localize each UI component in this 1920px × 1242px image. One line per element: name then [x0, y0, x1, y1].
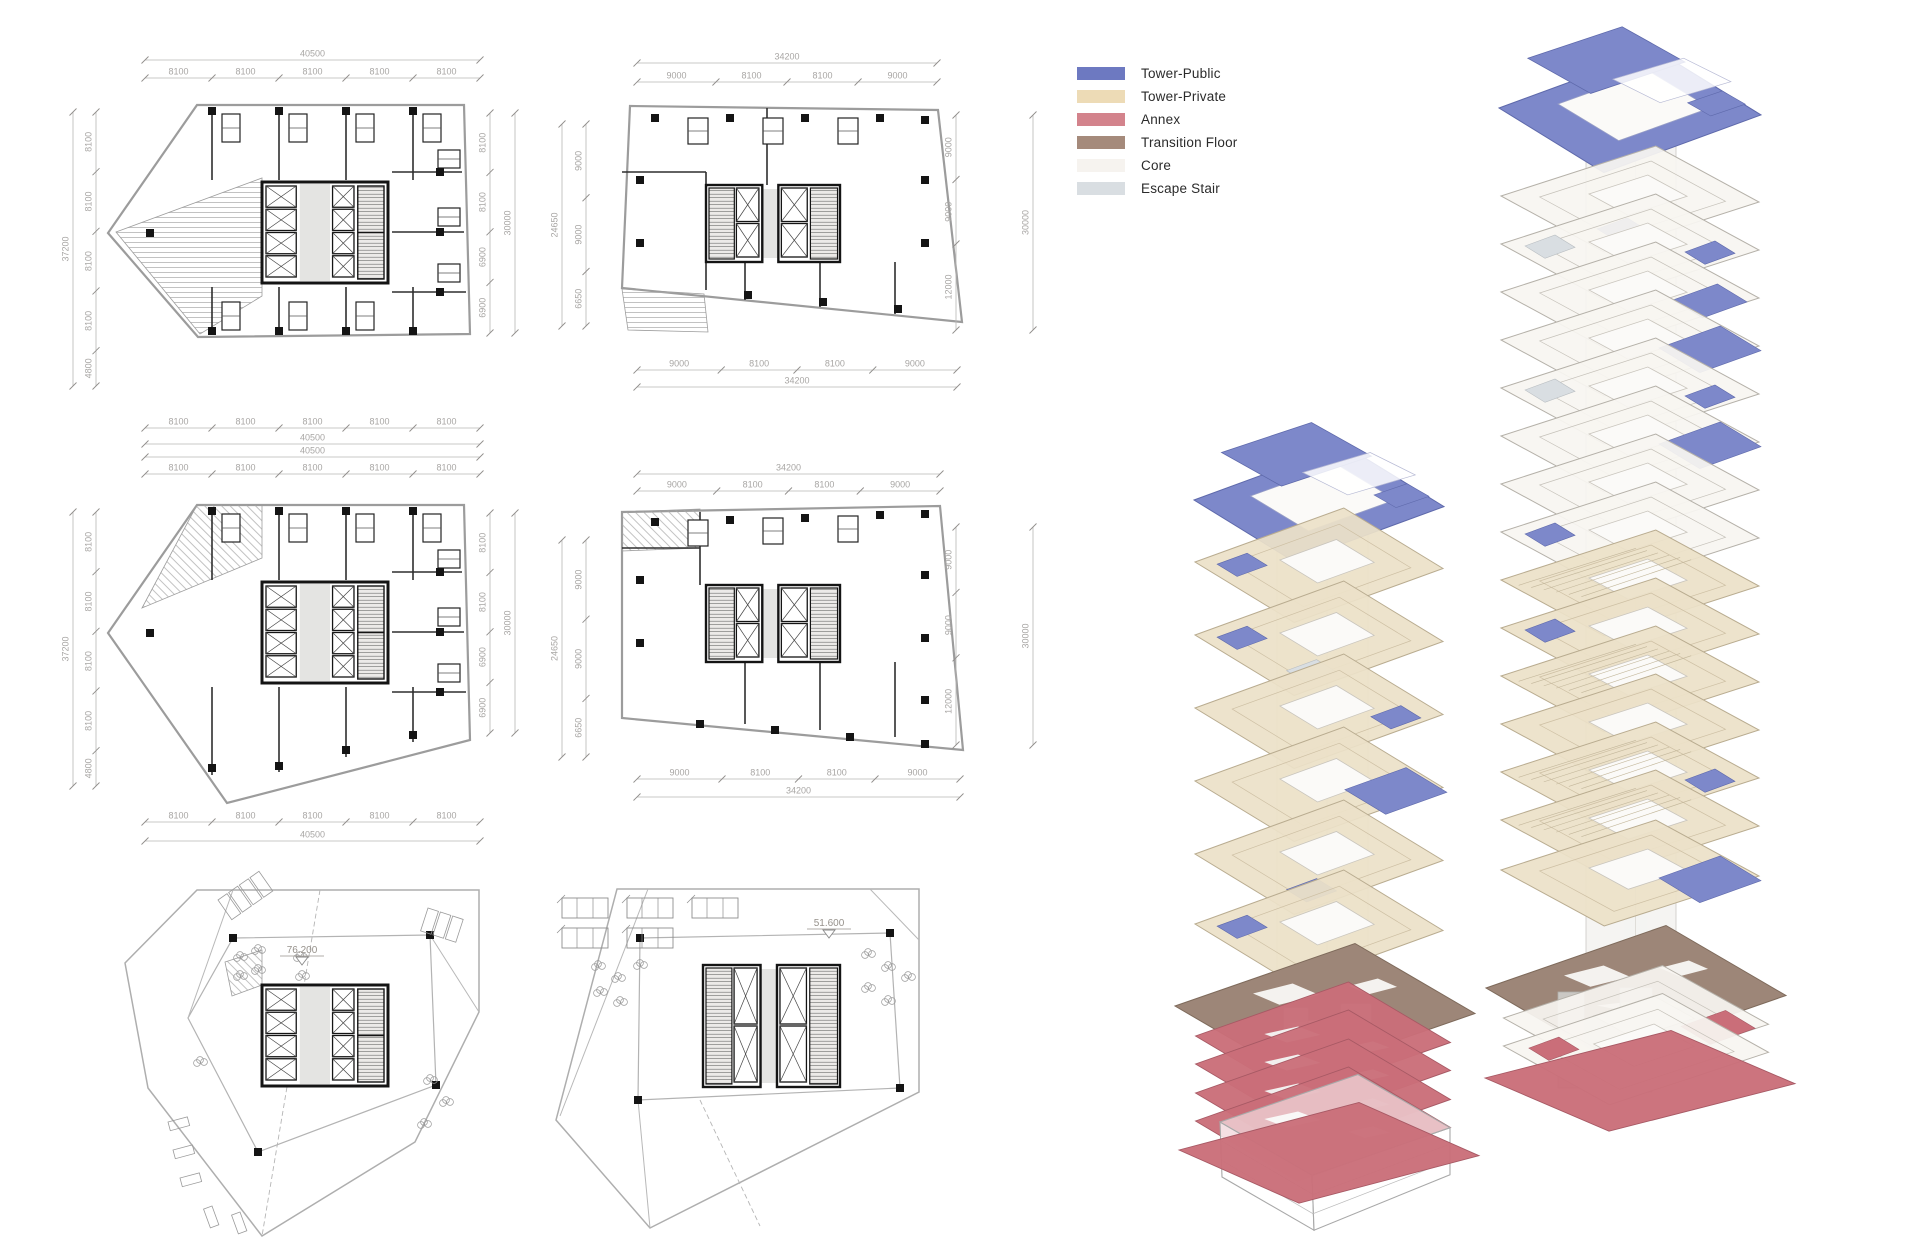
- dimension-text: 9000: [574, 151, 584, 171]
- dimension-text: 51.600: [814, 918, 845, 929]
- dimension-text: 12000: [944, 689, 954, 714]
- structural-column: [229, 934, 237, 942]
- dimension-text: 8100: [302, 463, 322, 473]
- dimension-text: 8100: [436, 67, 456, 77]
- structural-column: [208, 107, 216, 115]
- structural-column: [636, 176, 644, 184]
- structural-column: [651, 114, 659, 122]
- structural-column: [886, 929, 894, 937]
- escape-stair-hatch: [622, 289, 708, 332]
- structural-column: [846, 733, 854, 741]
- structural-column: [436, 568, 444, 576]
- dimension-text: 40500: [300, 49, 325, 59]
- dimension-text: 8100: [84, 311, 94, 331]
- structural-column: [275, 327, 283, 335]
- structural-column: [342, 327, 350, 335]
- tree-symbol: [447, 1099, 454, 1106]
- dimension-text: 9000: [905, 359, 925, 369]
- legend-item-annex: Annex: [1077, 108, 1357, 131]
- dimension-text: 8100: [369, 463, 389, 473]
- dimension-text: 9000: [944, 550, 954, 570]
- legend-label-annex: Annex: [1141, 112, 1180, 127]
- structural-column: [801, 514, 809, 522]
- dimension-text: 8100: [827, 768, 847, 778]
- dimension-text: 9000: [574, 570, 584, 590]
- dimension-text: 8100: [478, 133, 488, 153]
- structural-column: [651, 518, 659, 526]
- car-symbol: [173, 1145, 195, 1159]
- structural-column: [636, 639, 644, 647]
- structural-column: [896, 1084, 904, 1092]
- tree-symbol: [425, 1121, 432, 1128]
- dimension-text: 6900: [478, 298, 488, 318]
- dimension-text: 4800: [84, 358, 94, 378]
- legend-label-core: Core: [1141, 158, 1171, 173]
- dimension-text: 34200: [776, 463, 801, 473]
- plan-tower1-ground-site: 76.200: [125, 871, 479, 1236]
- dimension-text: 4800: [84, 758, 94, 778]
- structural-column: [726, 114, 734, 122]
- structural-column: [636, 576, 644, 584]
- structural-column: [409, 327, 417, 335]
- dimension-text: 8100: [84, 651, 94, 671]
- structural-column: [342, 746, 350, 754]
- legend-item-escape-stair: Escape Stair: [1077, 177, 1357, 200]
- legend-item-core: Core: [1077, 154, 1357, 177]
- structural-column: [208, 327, 216, 335]
- dimension-text: 8100: [168, 811, 188, 821]
- core-plan: [706, 585, 840, 662]
- dimension-text: 6650: [574, 289, 584, 309]
- structural-column: [436, 228, 444, 236]
- dimension-text: 8100: [478, 192, 488, 212]
- dimension-text: 8100: [813, 71, 833, 81]
- structural-column: [342, 107, 350, 115]
- plan-tower2-ground-site: 51.600: [556, 889, 919, 1228]
- dimension-text: 30000: [1021, 623, 1031, 648]
- structural-column: [771, 726, 779, 734]
- dimension-text: 37200: [61, 236, 71, 261]
- dimension-text: 9000: [944, 202, 954, 222]
- structural-column: [819, 298, 827, 306]
- structural-column: [409, 507, 417, 515]
- structural-column: [436, 168, 444, 176]
- core-plan: [262, 182, 388, 283]
- dimension-text: 8100: [235, 463, 255, 473]
- dimension-text: 24650: [550, 636, 560, 661]
- dimension-text: 8100: [825, 359, 845, 369]
- dimension-text: 9000: [907, 768, 927, 778]
- dimension-text: 8100: [168, 463, 188, 473]
- dimension-text: 40500: [300, 446, 325, 456]
- dimension-text: 9000: [888, 71, 908, 81]
- structural-column: [436, 288, 444, 296]
- dimension-text: 24650: [550, 212, 560, 237]
- dimension-text: 8100: [235, 67, 255, 77]
- structural-column: [208, 764, 216, 772]
- legend-swatch-core: [1077, 159, 1125, 172]
- structural-column: [921, 696, 929, 704]
- car-symbol: [204, 1206, 219, 1228]
- structural-column: [275, 762, 283, 770]
- dimension-text: 8100: [814, 480, 834, 490]
- legend-label-transition-floor: Transition Floor: [1141, 135, 1237, 150]
- structural-column: [921, 510, 929, 518]
- dimension-text: 6900: [478, 247, 488, 267]
- legend-item-transition-floor: Transition Floor: [1077, 131, 1357, 154]
- dimension-text: 9000: [944, 615, 954, 635]
- dimension-text: 8100: [235, 811, 255, 821]
- car-symbol: [180, 1173, 202, 1187]
- legend-swatch-tower-private: [1077, 90, 1125, 103]
- dimension-text: 34200: [774, 52, 799, 62]
- dimension-text: 9000: [890, 480, 910, 490]
- dimension-text: 37200: [61, 636, 71, 661]
- dimension-text: 8100: [436, 811, 456, 821]
- dimension-text: 6650: [574, 718, 584, 738]
- structural-column: [876, 511, 884, 519]
- legend-swatch-transition-floor: [1077, 136, 1125, 149]
- structural-column: [275, 107, 283, 115]
- structural-column: [254, 1148, 262, 1156]
- structural-column: [146, 629, 154, 637]
- dimension-text: 8100: [436, 463, 456, 473]
- structural-column: [342, 507, 350, 515]
- legend-swatch-escape-stair: [1077, 182, 1125, 195]
- dimension-text: 8100: [478, 533, 488, 553]
- dimension-text: 8100: [84, 191, 94, 211]
- plan-tower2-typical-upper: 9000810081009000342009000810081009000342…: [550, 52, 1037, 391]
- dimension-text: 8100: [302, 67, 322, 77]
- dimension-text: 9000: [666, 71, 686, 81]
- dimension-text: 40500: [300, 433, 325, 443]
- structural-column: [921, 116, 929, 124]
- dimension-text: 30000: [503, 210, 513, 235]
- core-plan: [262, 582, 388, 683]
- structural-column: [744, 291, 752, 299]
- structural-column: [636, 934, 644, 942]
- structural-column: [275, 507, 283, 515]
- dimension-text: 8100: [369, 811, 389, 821]
- legend-label-tower-public: Tower-Public: [1141, 66, 1221, 81]
- core-plan: [262, 985, 388, 1086]
- dimension-text: 34200: [784, 376, 809, 386]
- dimension-text: 8100: [478, 592, 488, 612]
- structural-column: [894, 305, 902, 313]
- structural-column: [801, 114, 809, 122]
- dimension-text: 9000: [669, 768, 689, 778]
- dimension-text: 12000: [944, 274, 954, 299]
- dimension-text: 8100: [741, 71, 761, 81]
- core-plan: [703, 965, 840, 1087]
- structural-column: [634, 1096, 642, 1104]
- dimension-text: 8100: [84, 591, 94, 611]
- exploded-axonometrics: [1175, 27, 1795, 1230]
- structural-column: [921, 176, 929, 184]
- structural-column: [726, 516, 734, 524]
- legend-label-tower-private: Tower-Private: [1141, 89, 1226, 104]
- plan-tower1-typical-lower: 8100810081008100810040500810081008100810…: [61, 446, 519, 845]
- dimension-text: 9000: [669, 359, 689, 369]
- dimension-text: 6900: [478, 647, 488, 667]
- legend-swatch-tower-public: [1077, 67, 1125, 80]
- structural-column: [876, 114, 884, 122]
- structural-column: [921, 239, 929, 247]
- dimension-text: 8100: [369, 417, 389, 427]
- dimension-text: 8100: [84, 711, 94, 731]
- car-symbol: [232, 1212, 247, 1234]
- tower2-exploded-axon: [1485, 27, 1795, 1131]
- structural-column: [436, 688, 444, 696]
- dimension-text: 9000: [574, 649, 584, 669]
- dimension-text: 6900: [478, 698, 488, 718]
- structural-column: [432, 1081, 440, 1089]
- dimension-text: 8100: [749, 359, 769, 369]
- dimension-text: 8100: [369, 67, 389, 77]
- dimension-text: 9000: [574, 225, 584, 245]
- dimension-text: 30000: [1021, 210, 1031, 235]
- plan-tower1-typical-upper: 8100810081008100810040500810081008100810…: [61, 49, 519, 448]
- tower1-exploded-axon: [1175, 423, 1479, 1231]
- structural-column: [921, 740, 929, 748]
- dimension-text: 8100: [750, 768, 770, 778]
- structural-column: [409, 731, 417, 739]
- parking-table: [562, 898, 608, 918]
- structural-column: [636, 239, 644, 247]
- dimension-text: 30000: [503, 610, 513, 635]
- plan-tower2-typical-lower: 9000810081009000342009000810081009000342…: [550, 463, 1037, 801]
- dimension-text: 9000: [944, 137, 954, 157]
- dimension-text: 8100: [235, 417, 255, 427]
- dimension-text: 8100: [168, 67, 188, 77]
- legend-item-tower-public: Tower-Public: [1077, 62, 1357, 85]
- dimension-text: 8100: [302, 417, 322, 427]
- structural-column: [921, 634, 929, 642]
- parking-table: [562, 928, 608, 948]
- dimension-text: 34200: [786, 786, 811, 796]
- structural-column: [409, 107, 417, 115]
- legend-swatch-annex: [1077, 113, 1125, 126]
- structural-column: [921, 571, 929, 579]
- dimension-text: 8100: [84, 132, 94, 152]
- drawing-canvas: 8100810081008100810040500810081008100810…: [0, 0, 1920, 1242]
- dimension-text: 8100: [168, 417, 188, 427]
- dimension-text: 9000: [667, 480, 687, 490]
- dimension-text: 8100: [84, 532, 94, 552]
- dimension-text: 8100: [743, 480, 763, 490]
- structural-column: [436, 628, 444, 636]
- dimension-text: 8100: [302, 811, 322, 821]
- structural-column: [696, 720, 704, 728]
- legend: Tower-Public Tower-Private Annex Transit…: [1077, 62, 1357, 200]
- dimension-text: 40500: [300, 830, 325, 840]
- structural-column: [146, 229, 154, 237]
- legend-item-tower-private: Tower-Private: [1077, 85, 1357, 108]
- legend-label-escape-stair: Escape Stair: [1141, 181, 1220, 196]
- dimension-text: 8100: [436, 417, 456, 427]
- dimension-text: 76.200: [287, 945, 318, 956]
- core-plan: [706, 185, 840, 262]
- dimension-text: 8100: [84, 251, 94, 271]
- structural-column: [208, 507, 216, 515]
- architectural-sheet: 8100810081008100810040500810081008100810…: [0, 0, 1920, 1242]
- floor-plans: 8100810081008100810040500810081008100810…: [61, 49, 1037, 1237]
